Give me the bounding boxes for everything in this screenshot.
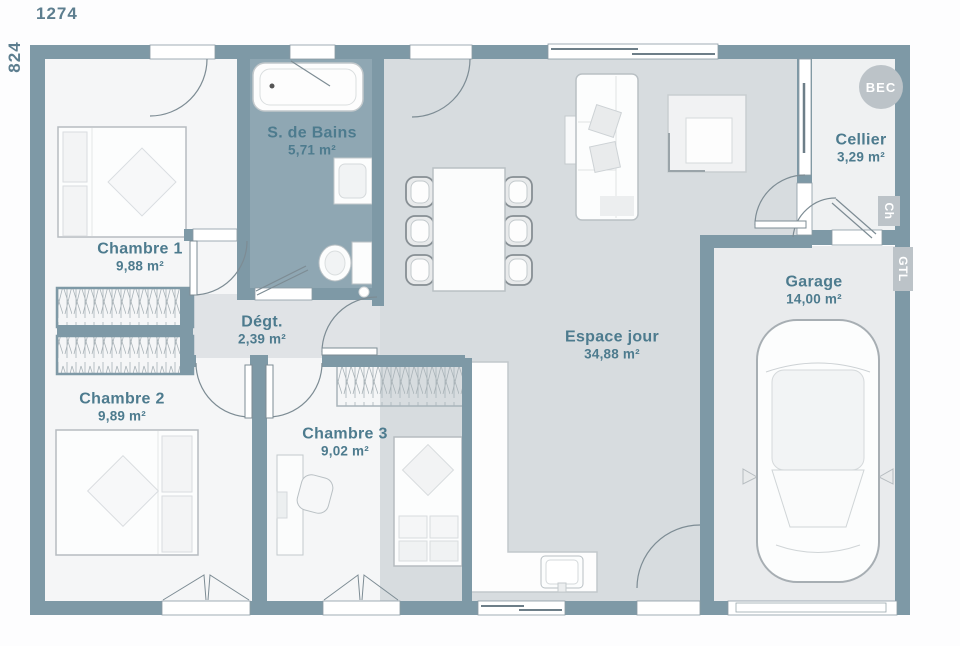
toilet-cistern <box>352 242 372 284</box>
wall-chambre3-espacejour <box>462 358 472 602</box>
bed1-pillow-bottom <box>63 186 87 236</box>
wall-left <box>30 45 45 615</box>
door-entree <box>637 601 700 615</box>
wall-cellier-bottom-b <box>882 230 896 245</box>
badge-ch: Ch <box>878 196 900 226</box>
armchair-set <box>668 95 746 172</box>
chair-left-1-seat <box>411 181 429 203</box>
leaf-degagement <box>322 348 377 355</box>
wall-stub-chambre1-door <box>184 229 193 241</box>
chair-left-2-seat <box>411 220 429 242</box>
sofa <box>565 74 638 220</box>
closet-chambre-1 <box>57 288 193 327</box>
badge-gtl: GTL <box>893 247 913 291</box>
dimension-width: 1274 <box>36 4 78 24</box>
sofa-chaise <box>600 196 634 216</box>
wall-sdb-espacejour <box>372 59 384 306</box>
wall-right <box>895 45 910 615</box>
window-cuisine <box>478 601 565 615</box>
door-gap-chambre-1 <box>193 229 237 241</box>
closet-chambre-2 <box>57 336 193 374</box>
wall-espacejour-garage-v <box>700 248 714 602</box>
closet-divider-wall <box>57 325 193 337</box>
car <box>743 320 893 582</box>
bed3-pillow-2 <box>430 516 458 538</box>
dining-set <box>406 168 532 291</box>
leaf-chambre-2 <box>245 365 252 418</box>
wall-espacejour-garage-h <box>700 235 812 248</box>
garage-door-panel <box>736 603 886 612</box>
plan-graphics <box>0 0 960 646</box>
window-chambre-1 <box>150 45 215 59</box>
washbasin-bowl <box>339 164 366 198</box>
kitchen-tap <box>558 583 566 592</box>
side-table <box>565 116 577 164</box>
window-sdb <box>290 45 335 59</box>
chair-right-1-seat <box>509 181 527 203</box>
wall-chambre1-sdb <box>237 59 250 300</box>
window-slider-espacejour <box>548 44 718 59</box>
leaf-chambre-3 <box>266 365 273 418</box>
chair-right-2-seat <box>509 220 527 242</box>
bed3-pillow-3 <box>399 541 427 561</box>
bed3-pillow-4 <box>430 541 458 561</box>
chair-right-3-seat <box>509 259 527 281</box>
dimension-height: 824 <box>5 41 25 72</box>
chair-left-3-seat <box>411 259 429 281</box>
toilet-seat <box>325 251 345 275</box>
bed1-pillow-top <box>63 132 87 182</box>
desk-drawer <box>277 492 287 518</box>
wall-degt-bottom-a <box>184 355 196 367</box>
badge-bec: BEC <box>859 65 903 109</box>
dining-table <box>433 168 505 291</box>
bed3-pillow-1 <box>399 516 427 538</box>
leaf-chambre-1 <box>190 241 197 295</box>
leaf-cellier <box>755 221 806 228</box>
door-espacejour-nord <box>410 45 472 59</box>
door-gap-sdb <box>255 288 312 300</box>
bed2-pillow-bottom <box>162 496 192 552</box>
wall-degt-bottom-c <box>322 355 465 367</box>
wall-cellier-bottom-a <box>812 230 832 245</box>
sofa-pillow-2 <box>590 142 621 173</box>
armchair-table <box>686 118 732 163</box>
bathtub-drain <box>270 84 275 89</box>
floor-plan: 1274 824 Chambre 1 9,88 m² S. de Bains 5… <box>0 0 960 646</box>
kitchen-sink-basin <box>546 560 578 584</box>
wall-chambre2-chambre3 <box>252 355 267 602</box>
bed2-pillow-top <box>162 436 192 492</box>
bathtub <box>253 63 363 111</box>
bed-chambre-2 <box>56 430 198 555</box>
car-roof <box>772 370 864 470</box>
window-chambre-2 <box>162 601 250 615</box>
floor-drain <box>359 287 369 297</box>
wardrobe-chambre-3 <box>337 366 464 406</box>
bed-chambre-1 <box>58 127 186 237</box>
window-chambre-3 <box>323 601 400 615</box>
bed-chambre-3 <box>394 437 462 566</box>
